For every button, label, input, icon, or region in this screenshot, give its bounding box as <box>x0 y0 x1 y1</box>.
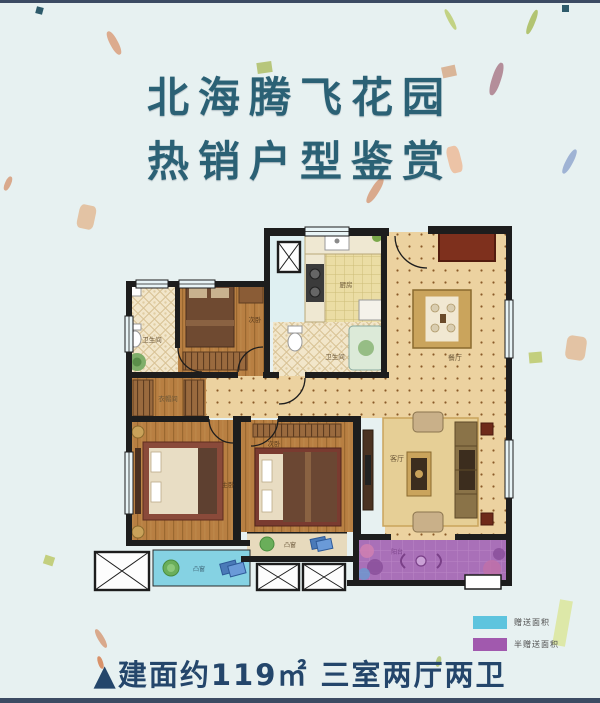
dining-table <box>413 290 471 348</box>
legend-row-gift-area: 赠送面积 <box>473 611 559 633</box>
legend-label-half-gift-area: 半赠送面积 <box>514 639 559 650</box>
room-label-bay1: 凸窗 <box>193 565 205 573</box>
top-edge-bar <box>0 0 600 3</box>
legend-swatch-half-gift-area <box>473 638 507 651</box>
room-label-living: 客厅 <box>390 454 404 463</box>
living-room-furniture <box>363 412 493 532</box>
room-label-bathroom-2: 卫生间 <box>325 352 345 361</box>
hallway <box>203 376 388 418</box>
room-label-bedroom-3: 次卧 <box>268 439 282 448</box>
room-label-master: 主卧 <box>222 480 236 489</box>
room-label-balcony: 阳台 <box>391 548 403 556</box>
room-label-bay2: 凸窗 <box>284 541 296 549</box>
floorplan-diagram: 卫生间 次卧 厨房 卫生间 餐厅 衣帽间 主卧 次卧 客厅 阳台 凸窗 凸窗 <box>83 220 520 600</box>
room-label-dining: 餐厅 <box>448 353 462 362</box>
room-label-bathroom-1: 卫生间 <box>142 335 162 344</box>
legend-label-gift-area: 赠送面积 <box>514 617 550 628</box>
legend-swatch-gift-area <box>473 616 507 629</box>
poster-title-line2: 热销户型鉴赏 <box>0 128 600 189</box>
poster-title-line1: 北海腾飞花园 <box>0 64 600 125</box>
room-label-kitchen: 厨房 <box>340 280 353 289</box>
poster-background: 北海腾飞花园 热销户型鉴赏 <box>0 0 600 703</box>
bottom-edge-bar <box>0 698 600 703</box>
entry-shoe-cabinet <box>439 231 495 261</box>
legend: 赠送面积 半赠送面积 <box>473 611 559 655</box>
room-label-cloakroom: 衣帽间 <box>158 394 178 403</box>
area-caption: ▲建面约119㎡ 三室两厅两卫 <box>0 652 600 694</box>
room-label-bedroom-2: 次卧 <box>249 315 263 324</box>
